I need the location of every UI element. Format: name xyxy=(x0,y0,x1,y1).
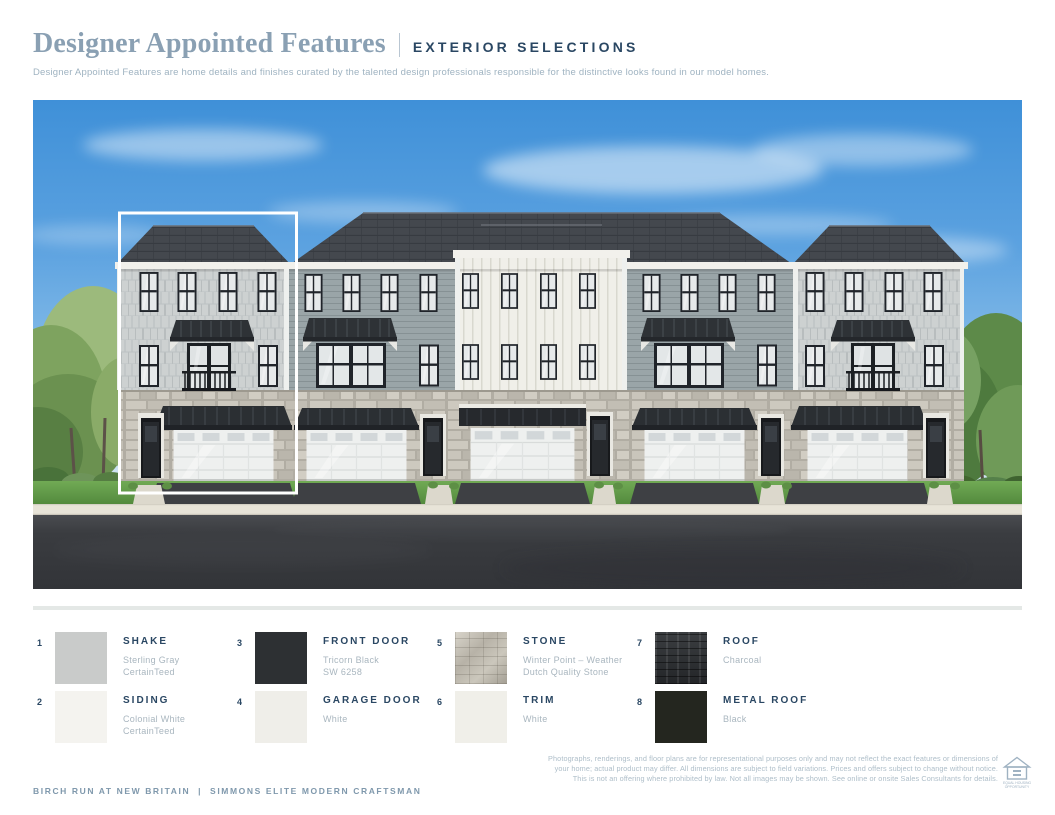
unit2-garage-awning xyxy=(294,408,419,430)
unit4-front-door xyxy=(758,414,784,476)
legend-column-1: 1 SHAKE Sterling GrayCertainTeed 2 SIDIN… xyxy=(33,632,233,743)
legend-item-trim: 6 TRIM White xyxy=(433,691,633,743)
unit3-garage-door xyxy=(471,428,575,482)
legend-item-shake: 1 SHAKE Sterling GrayCertainTeed xyxy=(33,632,233,684)
eho-text-2: OPPORTUNITY xyxy=(1005,785,1030,789)
legend-item-siding: 2 SIDING Colonial WhiteCertainTeed xyxy=(33,691,233,743)
road xyxy=(33,515,1022,589)
legend-column-2: 3 FRONT DOOR Tricorn BlackSW 6258 4 GARA… xyxy=(233,632,433,743)
community-line-1: BIRCH RUN AT NEW BRITAIN | SIMMONS ELITE… xyxy=(33,784,421,800)
foreground xyxy=(33,481,1022,589)
unit3-garage-fascia xyxy=(459,404,586,426)
garage-door-swatch xyxy=(255,691,307,743)
stone-swatch xyxy=(455,632,507,684)
header: Designer Appointed Features EXTERIOR SEL… xyxy=(33,28,1022,78)
legend-text: STONE Winter Point – WeatherDutch Qualit… xyxy=(523,632,622,678)
legend-column-3: 5 STONE Winter Point – WeatherDutch Qual… xyxy=(433,632,633,743)
siding-swatch xyxy=(55,691,107,743)
page-title: Designer Appointed Features xyxy=(33,28,386,60)
hero-rendering xyxy=(33,100,1022,589)
legend-item-metal-roof: 8 METAL ROOF Black xyxy=(633,691,1022,743)
unit2-front-door xyxy=(420,414,446,476)
equal-housing-logo: EQUAL HOUSING OPPORTUNITY xyxy=(1002,756,1032,790)
legend-number: 4 xyxy=(233,691,255,707)
front-door-swatch xyxy=(255,632,307,684)
unit4-garage-door xyxy=(645,430,745,482)
unit5-front-door xyxy=(923,413,949,478)
title-separator xyxy=(399,33,400,57)
legend-column-4: 7 ROOF Charcoal 8 METAL ROOF Black xyxy=(633,632,1022,743)
legend-text: FRONT DOOR Tricorn BlackSW 6258 xyxy=(323,632,410,678)
legend-number: 3 xyxy=(233,632,255,648)
townhome-row xyxy=(115,213,968,483)
unit5-garage-door xyxy=(808,430,908,482)
legal-disclaimer: Photographs, renderings, and floor plans… xyxy=(520,754,998,784)
legend-item-stone: 5 STONE Winter Point – WeatherDutch Qual… xyxy=(433,632,633,684)
unit4-garage-awning xyxy=(632,408,757,430)
unit2-double-window xyxy=(316,343,386,388)
legend-number: 7 xyxy=(633,632,655,648)
metal-roof-swatch xyxy=(655,691,707,743)
community-info: BIRCH RUN AT NEW BRITAIN | SIMMONS ELITE… xyxy=(33,753,421,815)
unit4-double-window xyxy=(654,343,724,388)
legend-number: 8 xyxy=(633,691,655,707)
legend-text: SHAKE Sterling GrayCertainTeed xyxy=(123,632,179,678)
disclaimer-line-2: your home; actual product may differ. Al… xyxy=(520,764,998,774)
trim-swatch xyxy=(455,691,507,743)
legend-item-garage-door: 4 GARAGE DOOR White xyxy=(233,691,433,743)
townhome-rendering-svg xyxy=(33,100,1022,589)
disclaimer-line-3: This is not an offering where prohibited… xyxy=(520,774,998,784)
unit1-front-door xyxy=(138,413,164,478)
legend-text: SIDING Colonial WhiteCertainTeed xyxy=(123,691,185,737)
legend-number: 6 xyxy=(433,691,455,707)
unit1-garage-door xyxy=(174,430,274,482)
section-divider xyxy=(33,606,1022,610)
legend-number: 5 xyxy=(433,632,455,648)
legend-number: 2 xyxy=(33,691,55,707)
header-description: Designer Appointed Features are home det… xyxy=(33,67,1022,78)
legend-text: METAL ROOF Black xyxy=(723,691,808,726)
subtitle-label: EXTERIOR SELECTIONS xyxy=(413,39,639,55)
unit5-garage-awning xyxy=(791,406,928,430)
unit1-garage-awning xyxy=(155,406,292,430)
legend-item-front-door: 3 FRONT DOOR Tricorn BlackSW 6258 xyxy=(233,632,433,684)
unit2-garage-door xyxy=(307,430,407,482)
roof-swatch xyxy=(655,632,707,684)
sidewalk xyxy=(33,504,1022,515)
legend-text: ROOF Charcoal xyxy=(723,632,761,667)
brochure-page: Designer Appointed Features EXTERIOR SEL… xyxy=(0,0,1055,815)
title-row: Designer Appointed Features EXTERIOR SEL… xyxy=(33,28,1022,60)
legend-text: GARAGE DOOR White xyxy=(323,691,422,726)
legend-text: TRIM White xyxy=(523,691,555,726)
disclaimer-line-1: Photographs, renderings, and floor plans… xyxy=(520,754,998,764)
shake-swatch xyxy=(55,632,107,684)
selections-legend: 1 SHAKE Sterling GrayCertainTeed 2 SIDIN… xyxy=(33,632,1022,743)
legend-item-roof: 7 ROOF Charcoal xyxy=(633,632,1022,684)
unit3-front-door xyxy=(587,412,613,476)
legend-number: 1 xyxy=(33,632,55,648)
